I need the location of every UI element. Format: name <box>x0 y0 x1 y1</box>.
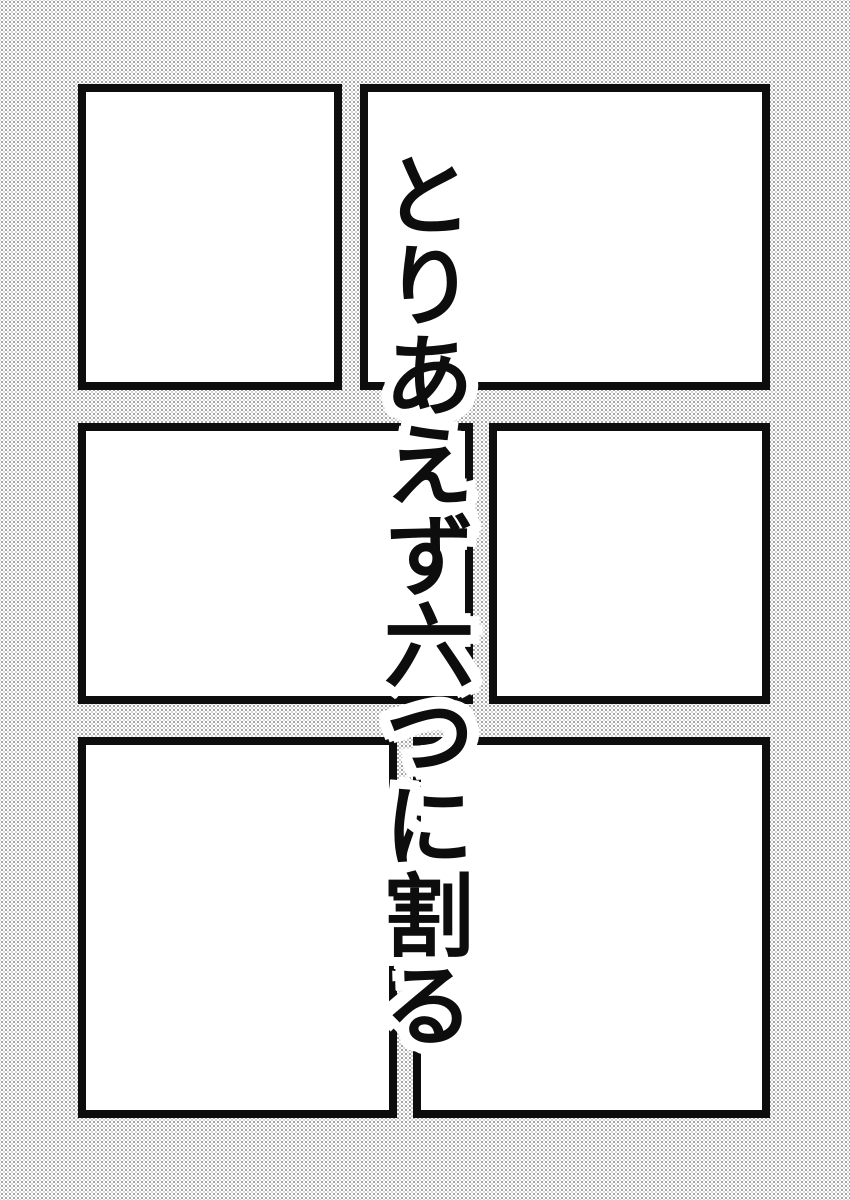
panel-top-left <box>78 84 342 390</box>
panel-bottom-left <box>78 737 397 1118</box>
manga-page: とりあえず六つに割る とりあえず六つに割る <box>0 0 850 1200</box>
caption-text: とりあえず六つに割る <box>374 149 466 1049</box>
panel-middle-right <box>489 423 770 704</box>
